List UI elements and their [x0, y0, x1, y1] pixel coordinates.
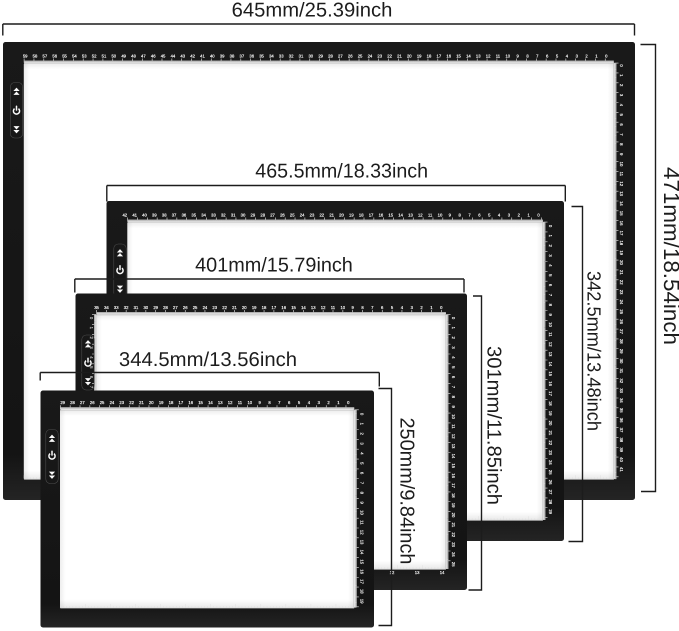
svg-text:35: 35	[94, 305, 99, 310]
svg-text:32: 32	[221, 213, 226, 218]
svg-text:24: 24	[110, 400, 115, 405]
svg-text:28: 28	[163, 305, 168, 310]
svg-text:23: 23	[548, 450, 553, 455]
svg-text:24: 24	[548, 460, 553, 465]
svg-text:18: 18	[359, 213, 364, 218]
svg-text:27: 27	[619, 329, 624, 334]
svg-text:22: 22	[451, 532, 456, 537]
svg-text:12: 12	[418, 213, 423, 218]
svg-text:15: 15	[456, 54, 461, 59]
svg-text:26: 26	[280, 213, 285, 218]
svg-text:14: 14	[466, 54, 471, 59]
svg-text:465.5mm/18.33inch: 465.5mm/18.33inch	[255, 161, 428, 183]
svg-text:11: 11	[451, 424, 456, 429]
svg-text:30: 30	[241, 213, 246, 218]
svg-text:19: 19	[360, 599, 365, 604]
svg-text:22: 22	[387, 54, 392, 59]
svg-text:56: 56	[52, 54, 57, 59]
svg-text:344.5mm/13.56inch: 344.5mm/13.56inch	[119, 349, 297, 371]
svg-text:14: 14	[619, 201, 624, 206]
svg-text:25: 25	[290, 213, 295, 218]
svg-text:25: 25	[619, 309, 624, 314]
svg-text:31: 31	[134, 305, 139, 310]
svg-text:21: 21	[451, 523, 456, 528]
svg-text:15: 15	[291, 305, 296, 310]
svg-text:55: 55	[62, 54, 67, 59]
svg-text:27: 27	[338, 54, 343, 59]
svg-text:31: 31	[299, 54, 304, 59]
svg-text:12: 12	[360, 530, 365, 535]
svg-text:38: 38	[230, 54, 235, 59]
svg-text:16: 16	[281, 305, 286, 310]
svg-text:40: 40	[619, 457, 624, 462]
svg-text:23: 23	[619, 290, 624, 295]
svg-text:50: 50	[111, 54, 116, 59]
svg-text:52: 52	[92, 54, 97, 59]
svg-text:19: 19	[619, 250, 624, 255]
svg-text:26: 26	[619, 319, 624, 324]
svg-text:29: 29	[251, 213, 256, 218]
svg-text:17: 17	[360, 579, 365, 584]
svg-text:32: 32	[289, 54, 294, 59]
svg-text:29: 29	[548, 509, 553, 514]
svg-text:29: 29	[60, 400, 65, 405]
svg-text:25: 25	[358, 54, 363, 59]
svg-text:21: 21	[548, 431, 553, 436]
svg-text:16: 16	[360, 569, 365, 574]
svg-text:24: 24	[451, 552, 456, 557]
svg-text:22: 22	[548, 440, 553, 445]
svg-text:19: 19	[417, 54, 422, 59]
svg-text:14: 14	[398, 213, 403, 218]
svg-text:17: 17	[272, 305, 277, 310]
svg-text:30: 30	[308, 54, 313, 59]
svg-text:25: 25	[193, 305, 198, 310]
svg-text:19: 19	[451, 503, 456, 508]
svg-text:11: 11	[238, 400, 243, 405]
svg-text:21: 21	[139, 400, 144, 405]
svg-text:14: 14	[451, 454, 456, 459]
svg-text:17: 17	[619, 231, 624, 236]
svg-text:10: 10	[548, 322, 553, 327]
svg-text:57: 57	[43, 54, 48, 59]
svg-text:36: 36	[619, 418, 624, 423]
svg-text:22: 22	[129, 400, 134, 405]
svg-text:20: 20	[339, 213, 344, 218]
svg-text:26: 26	[348, 54, 353, 59]
svg-text:34: 34	[104, 305, 109, 310]
svg-text:19: 19	[159, 400, 164, 405]
svg-text:26: 26	[90, 400, 95, 405]
svg-text:17: 17	[179, 400, 184, 405]
svg-text:18: 18	[619, 240, 624, 245]
svg-text:22: 22	[319, 213, 324, 218]
svg-text:17: 17	[369, 213, 374, 218]
svg-text:19: 19	[349, 213, 354, 218]
svg-text:29: 29	[619, 349, 624, 354]
svg-text:17: 17	[451, 483, 456, 488]
svg-text:15: 15	[198, 400, 203, 405]
svg-text:15: 15	[451, 463, 456, 468]
svg-text:16: 16	[446, 54, 451, 59]
svg-text:59: 59	[23, 54, 28, 59]
svg-text:18: 18	[169, 400, 174, 405]
svg-text:18: 18	[427, 54, 432, 59]
svg-text:24: 24	[203, 305, 208, 310]
svg-text:28: 28	[548, 499, 553, 504]
svg-text:14: 14	[548, 362, 553, 367]
svg-text:27: 27	[80, 400, 85, 405]
svg-text:12: 12	[321, 305, 326, 310]
svg-text:13: 13	[415, 570, 420, 575]
svg-text:645mm/25.39inch: 645mm/25.39inch	[232, 0, 393, 22]
svg-text:17: 17	[437, 54, 442, 59]
svg-text:24: 24	[619, 300, 624, 305]
svg-text:39: 39	[220, 54, 225, 59]
svg-text:36: 36	[249, 54, 254, 59]
svg-text:25: 25	[451, 562, 456, 567]
svg-text:10: 10	[505, 54, 510, 59]
svg-text:29: 29	[153, 305, 158, 310]
svg-text:27: 27	[173, 305, 178, 310]
svg-text:14: 14	[440, 570, 445, 575]
svg-text:43: 43	[180, 54, 185, 59]
svg-text:32: 32	[124, 305, 129, 310]
svg-text:39: 39	[152, 213, 157, 218]
svg-text:25: 25	[548, 470, 553, 475]
svg-text:12: 12	[451, 434, 456, 439]
svg-text:33: 33	[211, 213, 216, 218]
svg-text:39: 39	[619, 447, 624, 452]
svg-text:11: 11	[331, 305, 336, 310]
svg-text:23: 23	[119, 400, 124, 405]
svg-text:13: 13	[476, 54, 481, 59]
svg-text:41: 41	[619, 467, 624, 472]
svg-text:33: 33	[114, 305, 119, 310]
svg-text:10: 10	[340, 305, 345, 310]
svg-text:10: 10	[438, 213, 443, 218]
svg-text:28: 28	[70, 400, 75, 405]
svg-text:28: 28	[619, 339, 624, 344]
svg-text:42: 42	[190, 54, 195, 59]
svg-text:15: 15	[619, 211, 624, 216]
svg-text:11: 11	[496, 54, 501, 59]
svg-text:16: 16	[548, 381, 553, 386]
svg-text:10: 10	[360, 510, 365, 515]
svg-text:27: 27	[270, 213, 275, 218]
svg-text:38: 38	[162, 213, 167, 218]
svg-text:19: 19	[548, 411, 553, 416]
svg-text:471mm/18.54inch: 471mm/18.54inch	[659, 167, 679, 345]
svg-text:21: 21	[329, 213, 334, 218]
svg-text:13: 13	[451, 444, 456, 449]
svg-text:13: 13	[360, 540, 365, 545]
svg-text:13: 13	[218, 400, 223, 405]
svg-text:21: 21	[619, 270, 624, 275]
svg-text:22: 22	[222, 305, 227, 310]
svg-text:20: 20	[619, 260, 624, 265]
svg-text:34: 34	[619, 398, 624, 403]
svg-text:44: 44	[171, 54, 176, 59]
svg-text:21: 21	[232, 305, 237, 310]
svg-text:13: 13	[619, 191, 624, 196]
svg-text:41: 41	[200, 54, 205, 59]
svg-text:49: 49	[121, 54, 126, 59]
svg-text:26: 26	[548, 480, 553, 485]
svg-text:32: 32	[619, 378, 624, 383]
svg-text:40: 40	[210, 54, 215, 59]
svg-text:20: 20	[548, 421, 553, 426]
svg-text:38: 38	[619, 437, 624, 442]
svg-text:12: 12	[619, 181, 624, 186]
svg-text:31: 31	[231, 213, 236, 218]
svg-text:10: 10	[451, 414, 456, 419]
svg-text:16: 16	[619, 221, 624, 226]
svg-text:18: 18	[360, 589, 365, 594]
svg-text:48: 48	[131, 54, 136, 59]
svg-text:13: 13	[548, 352, 553, 357]
svg-text:28: 28	[328, 54, 333, 59]
svg-text:20: 20	[407, 54, 412, 59]
svg-text:18: 18	[548, 401, 553, 406]
svg-text:23: 23	[310, 213, 315, 218]
svg-text:22: 22	[619, 280, 624, 285]
svg-text:10: 10	[247, 400, 252, 405]
svg-text:23: 23	[451, 542, 456, 547]
svg-text:11: 11	[548, 332, 553, 337]
svg-text:24: 24	[368, 54, 373, 59]
svg-text:12: 12	[228, 400, 233, 405]
svg-text:36: 36	[182, 213, 187, 218]
svg-text:42: 42	[122, 213, 127, 218]
svg-text:20: 20	[242, 305, 247, 310]
svg-text:11: 11	[360, 520, 365, 525]
svg-text:25: 25	[100, 400, 105, 405]
svg-text:14: 14	[360, 550, 365, 555]
svg-text:12: 12	[390, 570, 395, 575]
svg-text:30: 30	[143, 305, 148, 310]
svg-text:29: 29	[318, 54, 323, 59]
svg-text:23: 23	[377, 54, 382, 59]
svg-text:37: 37	[619, 428, 624, 433]
svg-text:18: 18	[262, 305, 267, 310]
svg-text:23: 23	[212, 305, 217, 310]
svg-text:24: 24	[300, 213, 305, 218]
svg-text:35: 35	[619, 408, 624, 413]
svg-text:11: 11	[619, 172, 624, 177]
svg-text:35: 35	[191, 213, 196, 218]
svg-text:46: 46	[151, 54, 156, 59]
svg-text:51: 51	[102, 54, 107, 59]
svg-text:41: 41	[132, 213, 137, 218]
svg-text:31: 31	[619, 369, 624, 374]
svg-text:16: 16	[379, 213, 384, 218]
svg-text:250mm/9.84inch: 250mm/9.84inch	[395, 418, 417, 565]
svg-text:19: 19	[252, 305, 257, 310]
svg-text:20: 20	[451, 513, 456, 518]
svg-text:40: 40	[142, 213, 147, 218]
svg-text:10: 10	[619, 162, 624, 167]
svg-text:58: 58	[33, 54, 38, 59]
svg-text:401mm/15.79inch: 401mm/15.79inch	[195, 255, 353, 277]
svg-text:47: 47	[141, 54, 146, 59]
svg-text:53: 53	[82, 54, 87, 59]
svg-text:28: 28	[260, 213, 265, 218]
svg-text:12: 12	[548, 342, 553, 347]
svg-text:20: 20	[149, 400, 154, 405]
svg-text:14: 14	[208, 400, 213, 405]
svg-text:33: 33	[279, 54, 284, 59]
svg-text:35: 35	[259, 54, 264, 59]
svg-text:21: 21	[397, 54, 402, 59]
svg-text:301mm/11.85inch: 301mm/11.85inch	[482, 346, 504, 505]
svg-text:26: 26	[183, 305, 188, 310]
svg-text:15: 15	[360, 559, 365, 564]
svg-text:18: 18	[451, 493, 456, 498]
svg-text:12: 12	[486, 54, 491, 59]
svg-text:45: 45	[161, 54, 166, 59]
svg-text:37: 37	[240, 54, 245, 59]
svg-text:15: 15	[388, 213, 393, 218]
svg-text:54: 54	[72, 54, 77, 59]
svg-text:11: 11	[428, 213, 433, 218]
svg-text:15: 15	[548, 371, 553, 376]
svg-text:13: 13	[311, 305, 316, 310]
svg-text:37: 37	[172, 213, 177, 218]
svg-text:34: 34	[269, 54, 274, 59]
svg-text:14: 14	[301, 305, 306, 310]
svg-text:27: 27	[548, 490, 553, 495]
svg-text:33: 33	[619, 388, 624, 393]
svg-text:16: 16	[451, 473, 456, 478]
svg-text:342.5mm/13.48inch: 342.5mm/13.48inch	[583, 271, 604, 431]
svg-text:13: 13	[408, 213, 413, 218]
svg-text:34: 34	[201, 213, 206, 218]
svg-text:30: 30	[619, 359, 624, 364]
svg-text:17: 17	[548, 391, 553, 396]
svg-text:16: 16	[188, 400, 193, 405]
